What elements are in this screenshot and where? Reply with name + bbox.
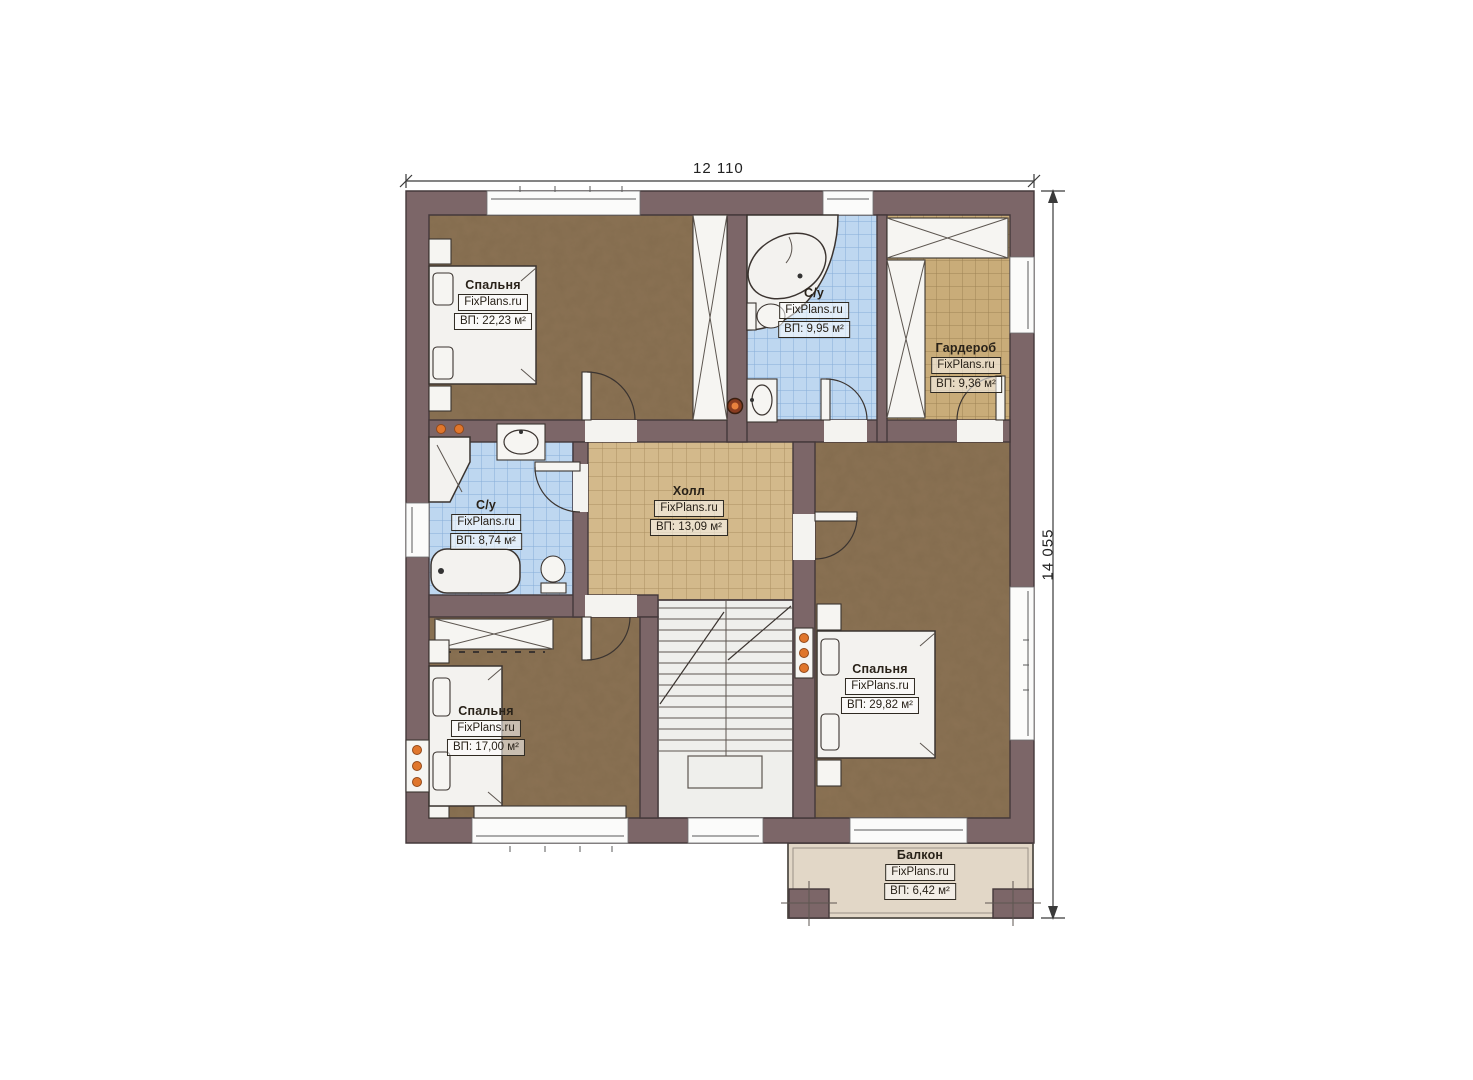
nightstand: [429, 640, 449, 663]
wardrobe-cabinet-left: [887, 260, 925, 418]
room-name: Спальня: [852, 662, 907, 676]
watermark: FixPlans.ru: [779, 302, 849, 319]
floorplan-canvas: 12 110 14 055 Спальня FixPlans.ru ВП: 22…: [0, 0, 1473, 1080]
balcony-door: [850, 818, 967, 843]
window: [823, 191, 873, 215]
room-name: С/у: [804, 286, 824, 300]
room-area: ВП: 6,42 м²: [884, 883, 956, 900]
window: [472, 818, 628, 852]
room-area: ВП: 22,23 м²: [454, 313, 532, 330]
radiator-icon: [795, 628, 813, 678]
room-name: С/у: [476, 498, 496, 512]
nightstand: [817, 604, 841, 630]
washbasin-icon: [747, 379, 777, 422]
watermark: FixPlans.ru: [654, 500, 724, 517]
room-area: ВП: 29,82 м²: [841, 697, 919, 714]
watermark: FixPlans.ru: [931, 357, 1001, 374]
room-label-bathroom-2: С/у FixPlans.ru ВП: 8,74 м²: [450, 498, 522, 550]
room-area: ВП: 8,74 м²: [450, 533, 522, 550]
window: [1010, 587, 1034, 740]
dimension-height-label: 14 055: [1039, 529, 1056, 581]
window: [688, 818, 763, 843]
room-label-hall: Холл FixPlans.ru ВП: 13,09 м²: [650, 484, 728, 536]
room-label-bedroom-1: Спальня FixPlans.ru ВП: 22,23 м²: [454, 278, 532, 330]
room-label-wardrobe: Гардероб FixPlans.ru ВП: 9,36 м²: [930, 341, 1002, 393]
room-area: ВП: 9,36 м²: [930, 376, 1002, 393]
built-in-wardrobe: [693, 215, 727, 420]
toilet-icon: [541, 556, 566, 593]
nightstand: [429, 386, 451, 411]
room-name: Холл: [673, 484, 705, 498]
room-name: Спальня: [458, 704, 513, 718]
window: [406, 503, 429, 557]
washbasin-icon: [497, 424, 545, 460]
nightstand: [817, 760, 841, 786]
watermark: FixPlans.ru: [885, 864, 955, 881]
window: [1010, 257, 1034, 333]
nightstand: [429, 239, 451, 264]
room-label-bathroom-1: С/у FixPlans.ru ВП: 9,95 м²: [778, 286, 850, 338]
room-area: ВП: 13,09 м²: [650, 519, 728, 536]
room-name: Гардероб: [936, 341, 997, 355]
bedroom3-wardrobe: [435, 619, 553, 652]
watermark: FixPlans.ru: [458, 294, 528, 311]
nightstand: [429, 806, 449, 818]
wall-bathroom1-wardrobe: [877, 215, 887, 442]
watermark: FixPlans.ru: [845, 678, 915, 695]
watermark: FixPlans.ru: [451, 720, 521, 737]
radiator-icon: [406, 740, 429, 792]
wall-bedroom3-stair: [640, 617, 658, 818]
room-label-bedroom-2: Спальня FixPlans.ru ВП: 29,82 м²: [841, 662, 919, 714]
room-area: ВП: 9,95 м²: [778, 321, 850, 338]
room-label-bedroom-3: Спальня FixPlans.ru ВП: 17,00 м²: [447, 704, 525, 756]
watermark: FixPlans.ru: [451, 514, 521, 531]
window-sill: [474, 806, 626, 818]
room-name: Спальня: [465, 278, 520, 292]
room-label-balcony: Балкон FixPlans.ru ВП: 6,42 м²: [884, 848, 956, 900]
room-name: Балкон: [897, 848, 943, 862]
wardrobe-cabinet-top: [887, 218, 1008, 258]
dimension-width-label: 12 110: [693, 160, 744, 177]
bathtub-icon: [431, 549, 520, 593]
wall-lamp-icon: [728, 399, 743, 414]
room-area: ВП: 17,00 м²: [447, 739, 525, 756]
